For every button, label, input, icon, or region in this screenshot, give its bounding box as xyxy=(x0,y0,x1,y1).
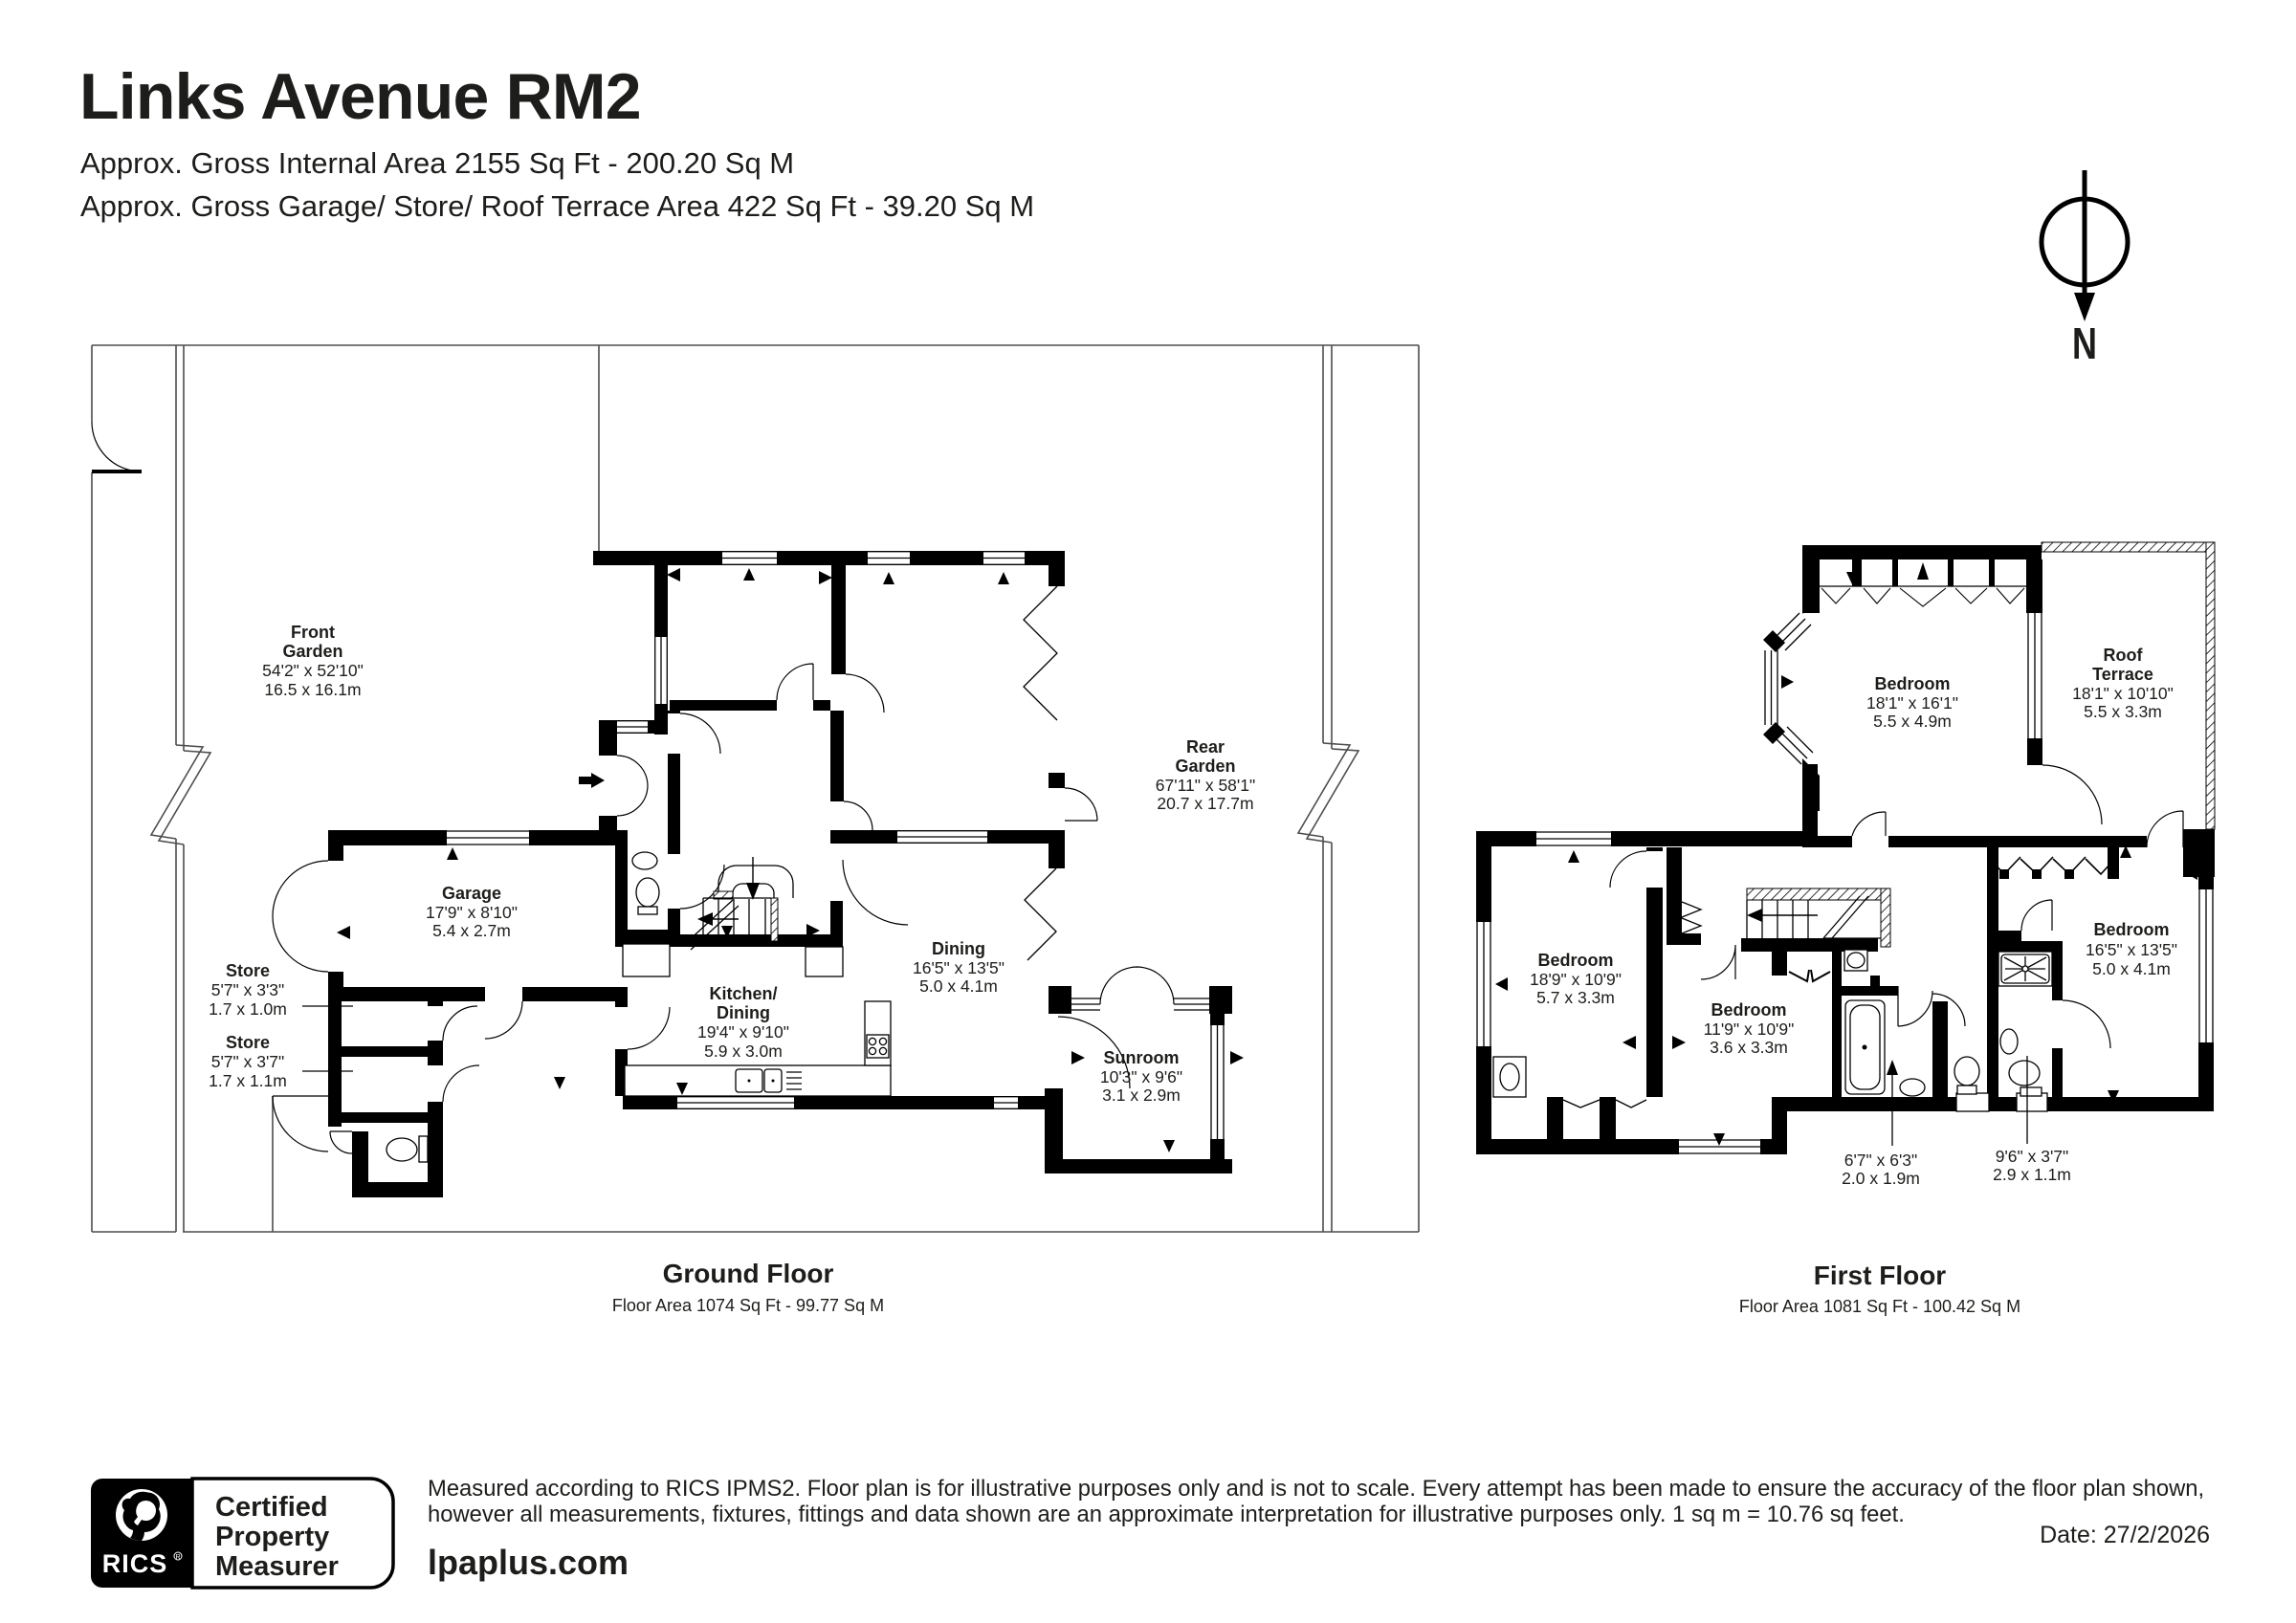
svg-text:N: N xyxy=(2072,318,2097,368)
svg-text:Certified: Certified xyxy=(215,1492,328,1523)
svg-text:Garden: Garden xyxy=(282,642,342,661)
svg-text:5.5 x 4.9m: 5.5 x 4.9m xyxy=(1873,712,1952,731)
svg-text:16'5" x 13'5": 16'5" x 13'5" xyxy=(2086,940,2177,959)
svg-text:Store: Store xyxy=(226,1033,270,1052)
svg-text:Rear: Rear xyxy=(1186,737,1225,757)
svg-text:Property: Property xyxy=(215,1522,329,1552)
svg-text:Sunroom: Sunroom xyxy=(1104,1048,1180,1067)
svg-text:5.9 x 3.0m: 5.9 x 3.0m xyxy=(704,1042,783,1061)
svg-text:Kitchen/: Kitchen/ xyxy=(709,984,777,1003)
svg-text:67'11" x 58'1": 67'11" x 58'1" xyxy=(1156,776,1255,795)
svg-text:Measurer: Measurer xyxy=(215,1551,339,1582)
svg-text:Garden: Garden xyxy=(1175,757,1235,776)
svg-text:Dining: Dining xyxy=(717,1003,770,1022)
svg-text:5.7 x 3.3m: 5.7 x 3.3m xyxy=(1536,988,1615,1007)
svg-text:2.9 x 1.1m: 2.9 x 1.1m xyxy=(1993,1165,2071,1184)
svg-text:Roof: Roof xyxy=(2104,646,2144,665)
svg-text:however all measurements, fixt: however all measurements, fixtures, fitt… xyxy=(428,1502,1905,1527)
svg-text:Front: Front xyxy=(291,623,335,642)
svg-text:18'1" x 10'10": 18'1" x 10'10" xyxy=(2072,684,2174,703)
svg-text:Garage: Garage xyxy=(442,884,501,903)
svg-text:Bedroom: Bedroom xyxy=(1874,674,1950,693)
svg-text:3.6 x 3.3m: 3.6 x 3.3m xyxy=(1710,1038,1788,1057)
svg-text:Measured according to RICS IPM: Measured according to RICS IPMS2. Floor … xyxy=(428,1476,2204,1502)
svg-text:6'7" x 6'3": 6'7" x 6'3" xyxy=(1844,1151,1918,1170)
svg-text:20.7 x 17.7m: 20.7 x 17.7m xyxy=(1157,794,1253,813)
svg-text:11'9" x 10'9": 11'9" x 10'9" xyxy=(1704,1020,1795,1039)
svg-text:Bedroom: Bedroom xyxy=(2093,920,2169,939)
svg-text:19'4" x 9'10": 19'4" x 9'10" xyxy=(697,1022,789,1042)
svg-text:Dining: Dining xyxy=(932,939,985,958)
svg-text:Approx. Gross Internal Area 21: Approx. Gross Internal Area 2155 Sq Ft -… xyxy=(80,146,794,180)
svg-text:3.1 x 2.9m: 3.1 x 2.9m xyxy=(1102,1086,1181,1105)
svg-text:5.4 x 2.7m: 5.4 x 2.7m xyxy=(432,921,511,940)
svg-text:18'1" x 16'1": 18'1" x 16'1" xyxy=(1866,693,1958,713)
svg-text:1.7 x 1.1m: 1.7 x 1.1m xyxy=(209,1071,287,1090)
svg-text:54'2" x 52'10": 54'2" x 52'10" xyxy=(262,661,364,680)
svg-text:16.5 x 16.1m: 16.5 x 16.1m xyxy=(264,680,361,699)
svg-text:1.7 x 1.0m: 1.7 x 1.0m xyxy=(209,999,287,1019)
svg-text:lpaplus.com: lpaplus.com xyxy=(428,1543,629,1582)
svg-text:17'9" x 8'10": 17'9" x 8'10" xyxy=(426,903,518,922)
svg-text:Links Avenue RM2: Links Avenue RM2 xyxy=(79,60,641,133)
svg-text:Floor Area 1074 Sq Ft - 99.77: Floor Area 1074 Sq Ft - 99.77 Sq M xyxy=(612,1296,884,1315)
svg-text:18'9" x 10'9": 18'9" x 10'9" xyxy=(1530,970,1622,989)
svg-text:10'3" x 9'6": 10'3" x 9'6" xyxy=(1100,1067,1182,1086)
svg-text:9'6" x 3'7": 9'6" x 3'7" xyxy=(1996,1147,2069,1166)
svg-text:5.0 x 4.1m: 5.0 x 4.1m xyxy=(2092,959,2171,978)
svg-text:Bedroom: Bedroom xyxy=(1711,1000,1786,1020)
svg-text:RICS: RICS xyxy=(102,1549,168,1578)
svg-text:Terrace: Terrace xyxy=(2092,665,2153,684)
svg-text:5'7" x 3'3": 5'7" x 3'3" xyxy=(211,980,285,999)
svg-text:Bedroom: Bedroom xyxy=(1537,951,1613,970)
svg-text:Approx. Gross Garage/ Store/ R: Approx. Gross Garage/ Store/ Roof Terrac… xyxy=(80,189,1034,223)
svg-text:R: R xyxy=(175,1554,180,1561)
svg-text:First Floor: First Floor xyxy=(1814,1261,1947,1290)
svg-text:5.5 x 3.3m: 5.5 x 3.3m xyxy=(2084,702,2162,721)
svg-text:Floor Area 1081 Sq Ft - 100.42: Floor Area 1081 Sq Ft - 100.42 Sq M xyxy=(1739,1297,2020,1316)
svg-text:2.0 x 1.9m: 2.0 x 1.9m xyxy=(1842,1169,1920,1188)
svg-text:16'5" x 13'5": 16'5" x 13'5" xyxy=(913,958,1004,977)
svg-text:5'7" x 3'7": 5'7" x 3'7" xyxy=(211,1052,285,1071)
svg-text:Ground Floor: Ground Floor xyxy=(663,1259,834,1288)
svg-text:5.0 x 4.1m: 5.0 x 4.1m xyxy=(919,976,998,996)
svg-text:Date: 27/2/2026: Date: 27/2/2026 xyxy=(2040,1522,2210,1548)
svg-text:Store: Store xyxy=(226,961,270,980)
